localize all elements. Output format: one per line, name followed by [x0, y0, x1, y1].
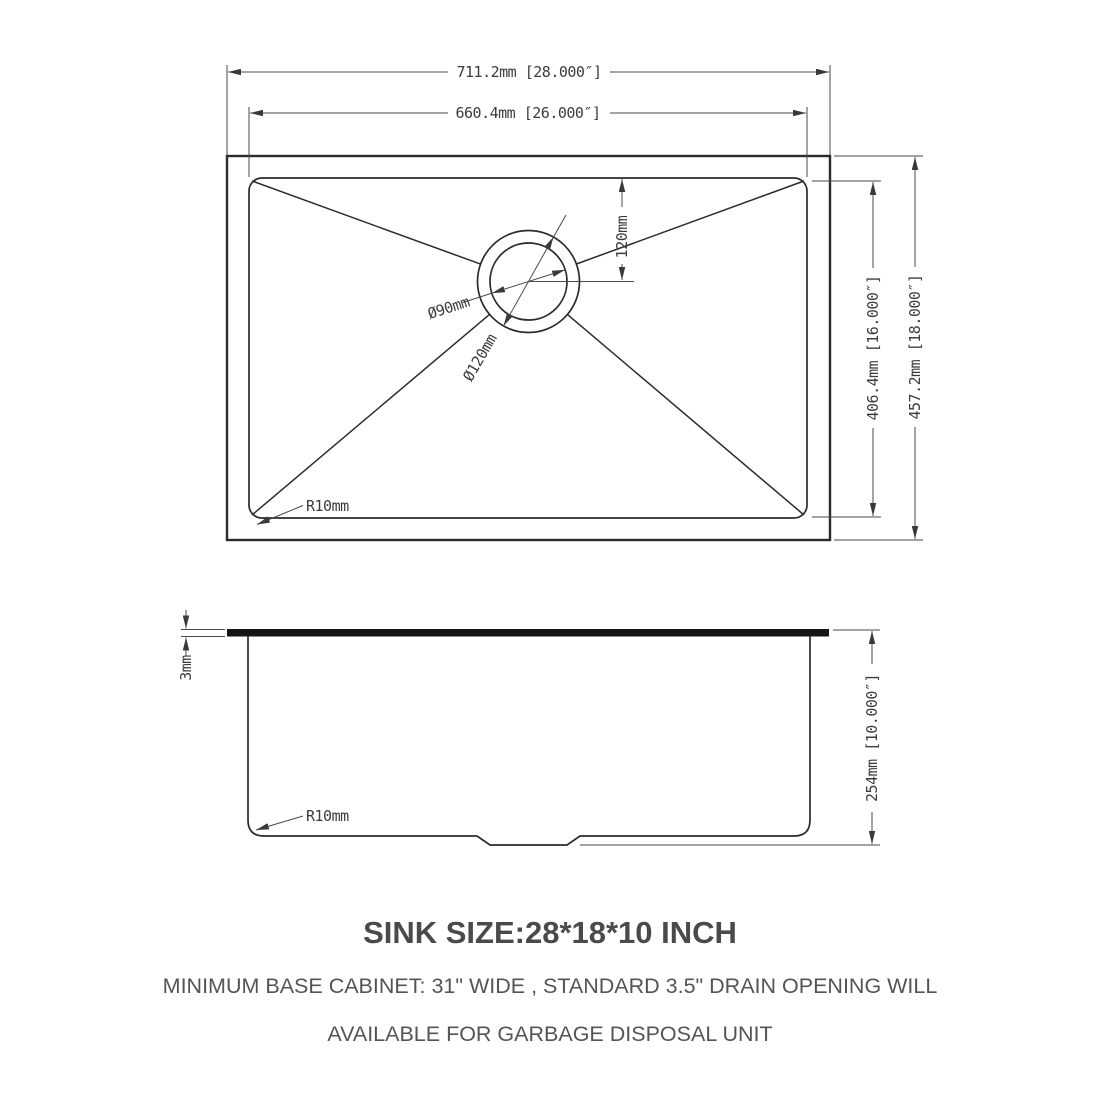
dim-drain-inner-dia: Ø90mm — [425, 270, 565, 323]
sink-size-title: SINK SIZE:28*18*10 INCH — [0, 915, 1100, 951]
sink-outer-rim — [227, 156, 830, 540]
rim-top-bar — [227, 629, 829, 637]
dim-rim-thickness-label: 3mm — [177, 655, 195, 681]
dim-depth: 254mm [10.000″] — [580, 630, 881, 845]
dim-inner-width-label: 660.4mm [26.000″] — [455, 104, 600, 122]
dim-corner-radius-top: R10mm — [257, 497, 349, 525]
sink-dimension-drawing: 711.2mm [28.000″] 660.4mm [26.000″] 406.… — [0, 0, 1100, 1100]
dim-depth-label: 254mm [10.000″] — [863, 674, 881, 802]
note-line-2: AVAILABLE FOR GARBAGE DISPOSAL UNIT — [0, 1022, 1100, 1047]
dim-drain-offset-label: 120mm — [613, 215, 631, 258]
dim-inner-width: 660.4mm [26.000″] — [249, 104, 807, 177]
notes-block: SINK SIZE:28*18*10 INCH MINIMUM BASE CAB… — [0, 905, 1100, 1047]
dim-outer-width-label: 711.2mm [28.000″] — [456, 63, 601, 81]
dim-inner-height-label: 406.4mm [16.000″] — [864, 275, 882, 420]
sink-inner-bowl — [249, 178, 807, 518]
dim-drain-outer-dia: Ø120mm — [459, 215, 566, 384]
technical-drawing-svg: 711.2mm [28.000″] 660.4mm [26.000″] 406.… — [0, 0, 1100, 900]
dim-drain-outer-dia-label: Ø120mm — [459, 331, 500, 385]
dim-corner-radius-side-label: R10mm — [306, 807, 349, 825]
dim-inner-height: 406.4mm [16.000″] — [812, 181, 882, 517]
dim-outer-height-label: 457.2mm [18.000″] — [906, 274, 924, 419]
dim-corner-radius-top-label: R10mm — [306, 497, 349, 515]
dim-drain-inner-dia-label: Ø90mm — [425, 292, 472, 322]
dim-drain-offset: 120mm — [529, 179, 635, 282]
top-view — [227, 156, 830, 540]
note-line-1: MINIMUM BASE CABINET: 31" WIDE , STANDAR… — [0, 974, 1100, 999]
dim-rim-thickness: 3mm — [177, 610, 225, 681]
dim-corner-radius-side: R10mm — [256, 807, 349, 830]
